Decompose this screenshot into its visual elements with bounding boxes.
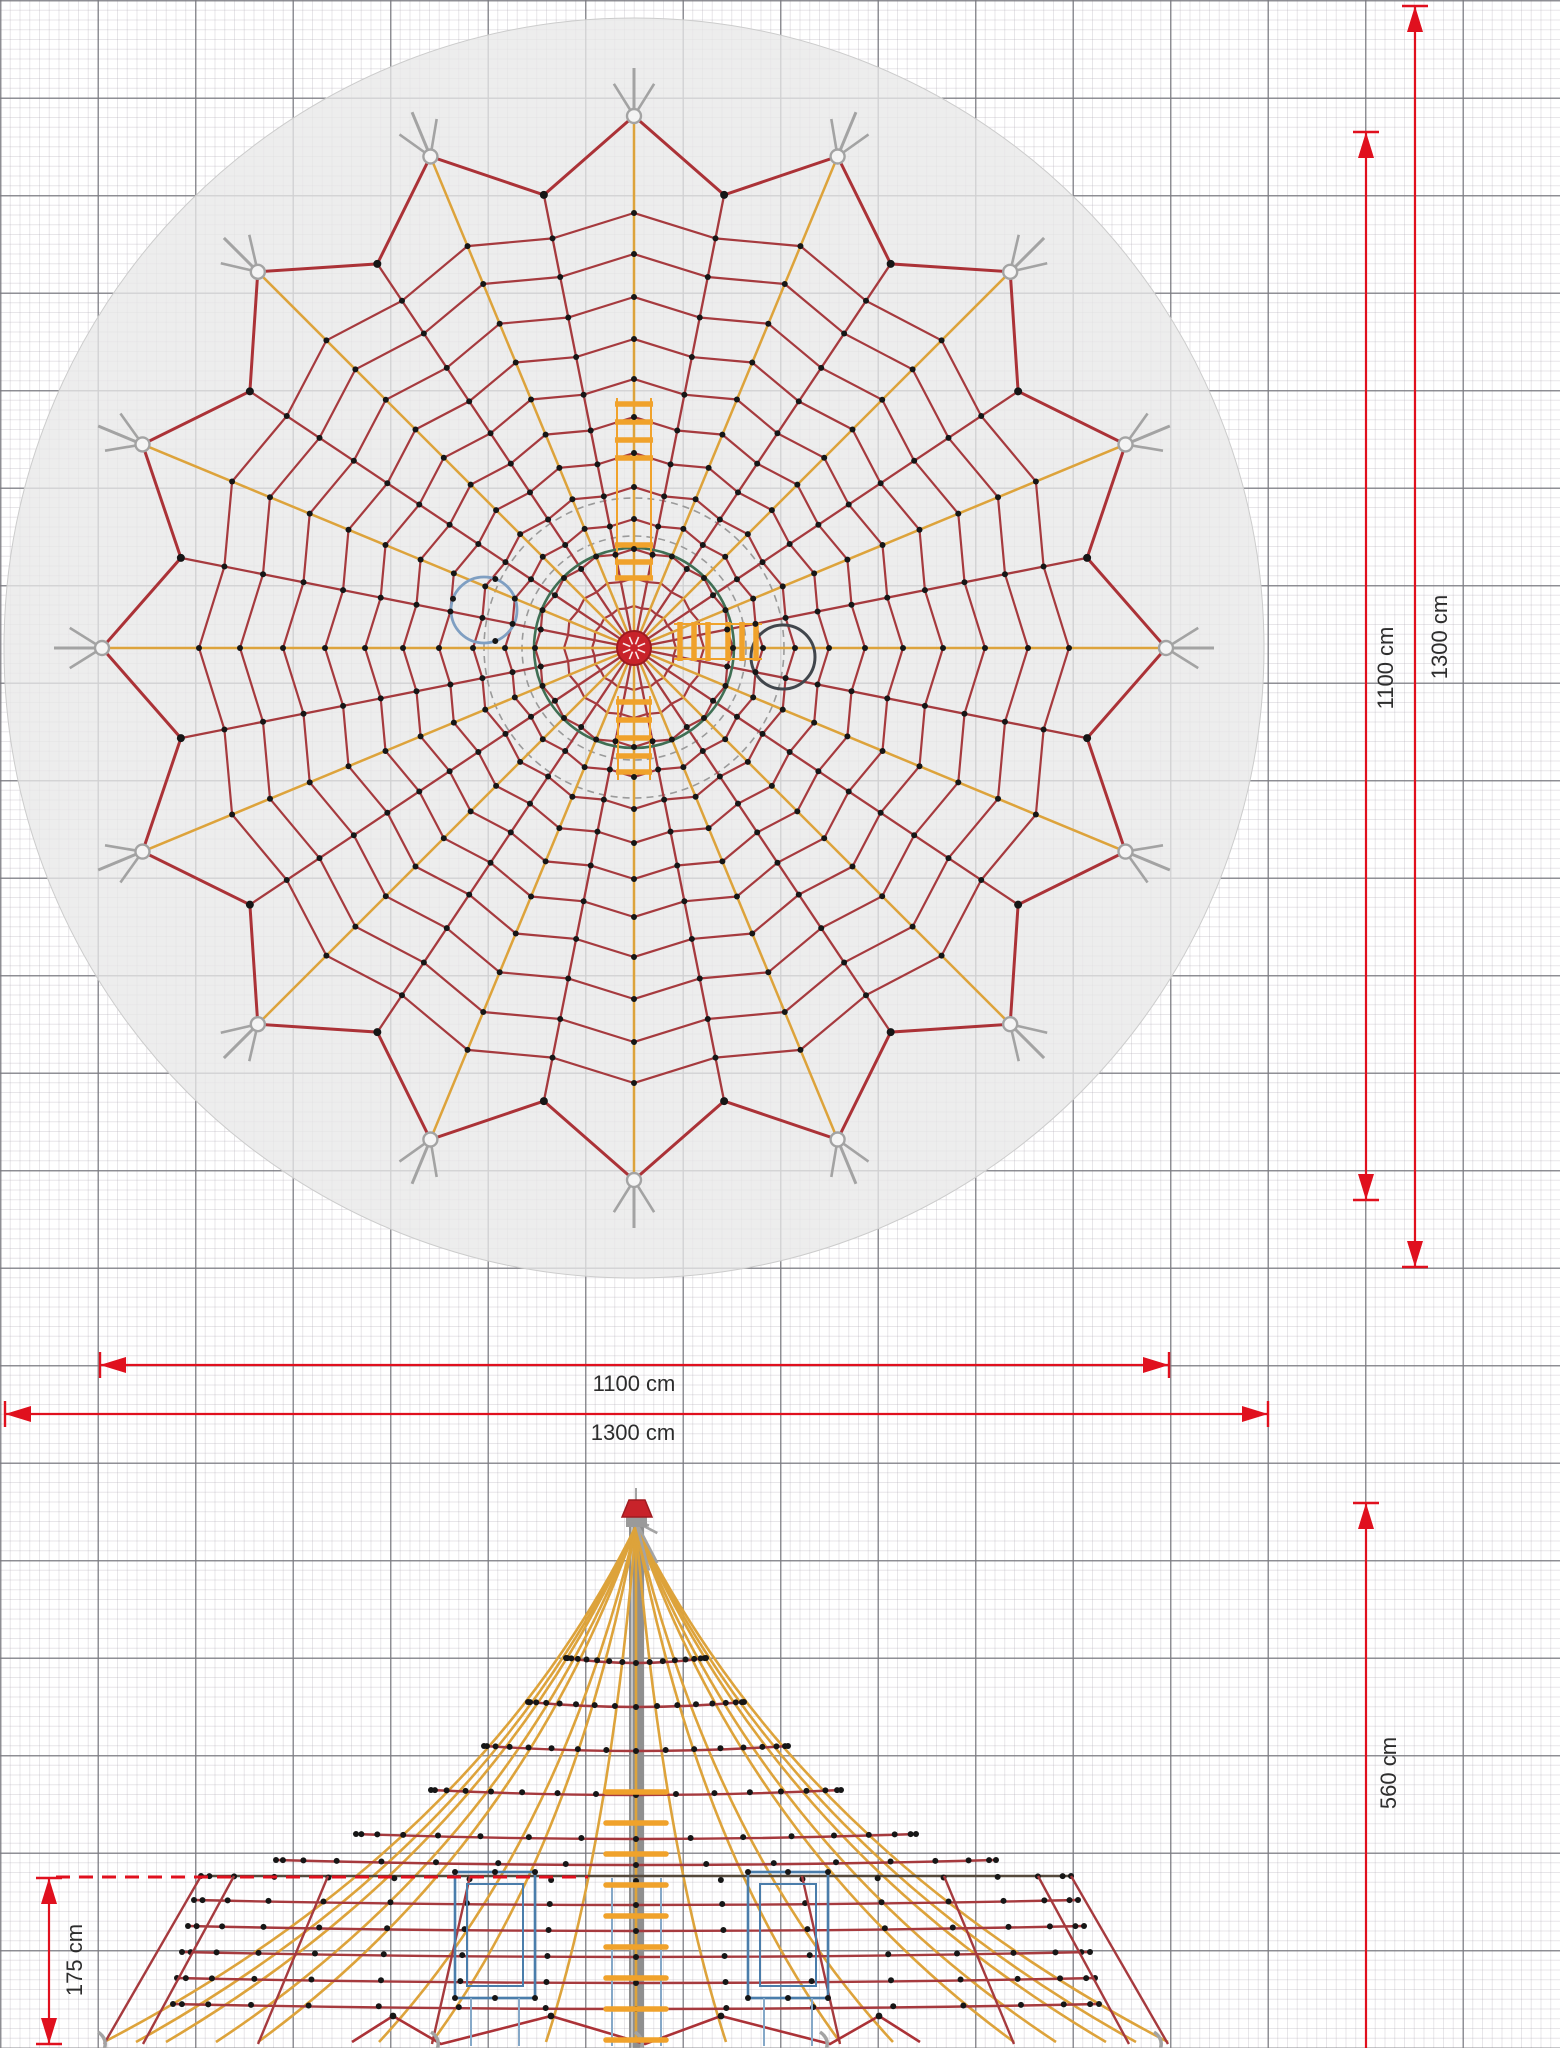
dim-label-elevation-edge-height: 175 cm (62, 1912, 88, 2008)
technical-drawing-svg (0, 0, 1560, 2048)
elevation-view (86, 1488, 1168, 2048)
dim-label-plan-outer-height: 1300 cm (1427, 589, 1453, 685)
drawing-canvas: 1100 cm 1300 cm 1100 cm 1300 cm 560 cm 1… (0, 0, 1560, 2048)
dim-label-elevation-height: 560 cm (1376, 1725, 1402, 1821)
dim-label-plan-inner-width: 1100 cm (586, 1371, 682, 1397)
plan-view (4, 18, 1264, 1278)
dim-label-plan-outer-width: 1300 cm (585, 1420, 681, 1446)
dim-label-plan-inner-height: 1100 cm (1373, 620, 1399, 716)
